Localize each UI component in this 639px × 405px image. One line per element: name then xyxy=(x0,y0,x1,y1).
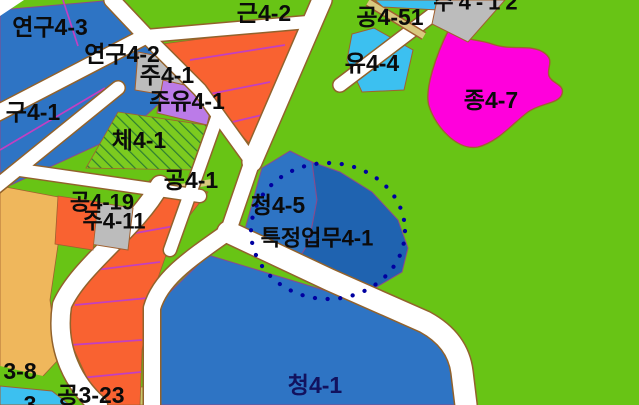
label-teukjeong-eopmu-4-1: 특정업무4-1 xyxy=(261,226,374,251)
label-gong-4-51: 공4-51 xyxy=(356,4,423,30)
label-ju-4-12-partial: 주4-12 xyxy=(433,0,522,15)
label-cheong-4-5: 청4-5 xyxy=(251,192,306,218)
label-gong-4-1: 공4-1 xyxy=(164,167,219,193)
label-yeongu-4-3: 연구4-3 xyxy=(12,14,88,40)
label-gong-3-23: 공3-23 xyxy=(57,382,124,405)
label-che-4-1: 체4-1 xyxy=(112,127,167,153)
label-ju-4-1: 주4-1 xyxy=(140,62,195,88)
label-bottom-left-partial: 3 xyxy=(24,391,37,405)
label-juyu-4-1: 주유4-1 xyxy=(149,88,225,114)
zoning-map-canvas: 연구4-3 연구4-2 주4-1 주유4-1 구4-1 체4-1 공4-1 공4… xyxy=(0,0,639,405)
label-ju-4-11: 주4-11 xyxy=(82,209,145,234)
label-cheong-4-1: 청4-1 xyxy=(288,372,343,398)
label-jong-4-7: 종4-7 xyxy=(464,87,518,113)
zoning-map: 연구4-3 연구4-2 주4-1 주유4-1 구4-1 체4-1 공4-1 공4… xyxy=(0,0,639,405)
label-yu-4-4: 유4-4 xyxy=(345,50,400,76)
label-gu-4-1-partial: 구4-1 xyxy=(6,99,61,125)
label-3-8-partial: 3-8 xyxy=(3,358,36,384)
label-geun-4-2: 근4-2 xyxy=(237,0,291,26)
